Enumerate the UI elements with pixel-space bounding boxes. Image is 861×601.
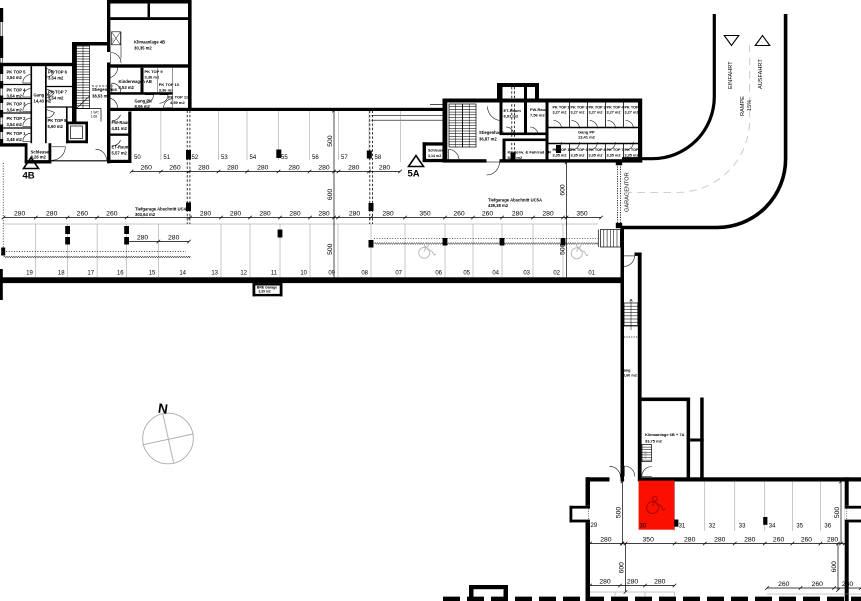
svg-text:439,38 m2: 439,38 m2: [488, 203, 509, 208]
svg-text:280: 280: [512, 210, 524, 217]
svg-text:PK TOP 4: PK TOP 4: [607, 106, 625, 110]
svg-text:55: 55: [281, 155, 288, 161]
svg-text:600: 600: [327, 189, 334, 201]
svg-text:PK TOP 9: PK TOP 9: [145, 69, 164, 74]
svg-text:4,53 m2: 4,53 m2: [119, 85, 135, 90]
svg-text:3,35 m2: 3,35 m2: [553, 154, 567, 158]
svg-text:17: 17: [87, 271, 94, 277]
svg-text:280: 280: [600, 536, 612, 543]
svg-text:51: 51: [163, 155, 170, 161]
svg-text:3,26 m2: 3,26 m2: [31, 155, 47, 160]
svg-text:PK TOP 1: PK TOP 1: [553, 106, 570, 110]
svg-text:Schleuse: Schleuse: [428, 149, 444, 153]
svg-text:Kinderwagen AB: Kinderwagen AB: [119, 79, 152, 84]
svg-text:280: 280: [230, 210, 242, 217]
svg-text:280: 280: [627, 578, 639, 585]
svg-text:280: 280: [227, 164, 239, 171]
svg-text:PK TOP 10: PK TOP 10: [159, 82, 180, 87]
svg-text:3,27 m2: 3,27 m2: [571, 111, 585, 115]
svg-text:AUSFAHRT: AUSFAHRT: [758, 59, 764, 89]
svg-text:280: 280: [842, 581, 854, 588]
svg-text:Klimaanlage 6B + 7A: Klimaanlage 6B + 7A: [645, 432, 685, 437]
svg-text:280: 280: [137, 234, 149, 241]
svg-text:PK TOP 8: PK TOP 8: [48, 118, 68, 123]
svg-text:32: 32: [709, 524, 716, 530]
svg-text:3,27 m2: 3,27 m2: [625, 111, 639, 115]
svg-text:36: 36: [824, 524, 831, 530]
svg-text:600: 600: [560, 184, 567, 196]
svg-text:280: 280: [168, 234, 180, 241]
svg-text:PK TOP 2: PK TOP 2: [571, 106, 588, 110]
svg-text:280: 280: [14, 210, 26, 217]
svg-text:11: 11: [271, 271, 278, 277]
svg-text:18: 18: [58, 271, 65, 277]
svg-text:Gang: Gang: [621, 369, 631, 373]
svg-text:16: 16: [117, 271, 124, 277]
svg-text:350: 350: [419, 210, 431, 217]
svg-text:PK TOP 2: PK TOP 2: [7, 116, 27, 121]
svg-text:3,54 m2: 3,54 m2: [7, 75, 23, 80]
svg-text:Tiefgarage Abschnitt UC4B: Tiefgarage Abschnitt UC4B: [135, 207, 189, 212]
svg-text:5,60 m2: 5,60 m2: [48, 124, 64, 129]
svg-text:09: 09: [328, 271, 335, 277]
svg-text:260: 260: [773, 536, 785, 543]
svg-text:4B: 4B: [23, 171, 35, 182]
svg-text:350: 350: [643, 536, 655, 543]
svg-text:4,5/20: 4,5/20: [644, 451, 648, 459]
svg-text:19: 19: [26, 271, 33, 277]
svg-text:280: 280: [827, 536, 839, 543]
svg-text:13: 13: [211, 271, 218, 277]
svg-text:12: 12: [240, 271, 247, 277]
svg-text:05: 05: [463, 271, 470, 277]
svg-text:58: 58: [375, 155, 382, 161]
svg-text:06: 06: [435, 271, 442, 277]
svg-text:260: 260: [141, 164, 153, 171]
svg-text:01: 01: [588, 271, 595, 277]
svg-text:280: 280: [318, 210, 330, 217]
svg-text:Stiegenhaus: Stiegenhaus: [92, 87, 118, 92]
svg-text:600: 600: [831, 561, 838, 573]
svg-text:280: 280: [198, 164, 210, 171]
svg-text:280: 280: [46, 210, 58, 217]
svg-text:280: 280: [289, 210, 301, 217]
svg-text:3,48 m2: 3,48 m2: [7, 137, 23, 142]
svg-text:15: 15: [149, 271, 156, 277]
svg-text:8,91 m2: 8,91 m2: [504, 114, 519, 119]
svg-text:280: 280: [542, 210, 554, 217]
svg-text:PK TOP 3: PK TOP 3: [589, 106, 606, 110]
svg-text:4,81 m2: 4,81 m2: [112, 126, 128, 131]
svg-text:3,54 m2: 3,54 m2: [7, 108, 23, 113]
svg-text:ET-Raum: ET-Raum: [504, 108, 522, 113]
svg-text:260: 260: [169, 164, 181, 171]
svg-text:Tiefgarage Abschnitt UC5A: Tiefgarage Abschnitt UC5A: [488, 198, 542, 203]
svg-text:RAMPE: RAMPE: [740, 96, 746, 116]
svg-text:280: 280: [379, 164, 391, 171]
svg-text:N: N: [157, 401, 169, 417]
svg-text:34: 34: [769, 524, 776, 530]
svg-text:500: 500: [327, 243, 334, 255]
svg-text:5A: 5A: [408, 169, 420, 180]
svg-text:29: 29: [591, 523, 598, 529]
svg-text:500: 500: [560, 243, 567, 255]
svg-text:280: 280: [654, 578, 666, 585]
svg-text:260: 260: [453, 210, 465, 217]
svg-text:3,35 m2: 3,35 m2: [625, 154, 639, 158]
svg-text:04: 04: [492, 271, 499, 277]
svg-text:13,41 m2: 13,41 m2: [578, 135, 596, 140]
svg-text:4,59 m2: 4,59 m2: [170, 100, 185, 105]
svg-text:Klimaanlage 4B: Klimaanlage 4B: [134, 40, 165, 45]
svg-text:3,27 m2: 3,27 m2: [589, 111, 603, 115]
svg-text:31: 31: [679, 524, 686, 530]
svg-text:EINFAHRT: EINFAHRT: [728, 61, 734, 89]
svg-text:3,14 m2: 3,14 m2: [428, 154, 441, 158]
svg-text:500: 500: [616, 507, 623, 519]
svg-text:3,36 m2: 3,36 m2: [159, 88, 174, 93]
svg-text:280: 280: [200, 210, 212, 217]
svg-text:53: 53: [221, 155, 228, 161]
svg-text:280: 280: [318, 164, 330, 171]
svg-text:280: 280: [599, 578, 611, 585]
svg-text:280: 280: [382, 210, 394, 217]
svg-text:ET-Raum: ET-Raum: [112, 145, 130, 150]
svg-text:260: 260: [482, 210, 494, 217]
svg-text:3,27 m2: 3,27 m2: [553, 111, 567, 115]
svg-text:260: 260: [77, 210, 89, 217]
svg-text:600: 600: [619, 562, 626, 574]
svg-text:500: 500: [327, 135, 334, 147]
svg-text:PK TOP 7: PK TOP 7: [48, 90, 68, 95]
svg-text:03: 03: [523, 271, 530, 277]
svg-text:PK TOP 5: PK TOP 5: [7, 69, 27, 74]
svg-text:280: 280: [348, 164, 360, 171]
svg-text:3,54 m2: 3,54 m2: [7, 122, 23, 127]
svg-text:350: 350: [576, 210, 588, 217]
svg-text:08: 08: [361, 271, 368, 277]
svg-text:303,64 m2: 303,64 m2: [135, 212, 156, 217]
svg-text:PK TOP 4: PK TOP 4: [7, 88, 27, 93]
svg-text:3,39 m2: 3,39 m2: [259, 289, 271, 293]
svg-text:7,56 m2: 7,56 m2: [530, 113, 545, 118]
svg-text:14: 14: [179, 271, 186, 277]
svg-text:33,75 m2: 33,75 m2: [645, 439, 663, 444]
svg-text:500: 500: [834, 507, 841, 519]
svg-text:33,60 m2: 33,60 m2: [621, 374, 637, 378]
svg-text:260: 260: [778, 581, 790, 588]
svg-text:280: 280: [288, 164, 300, 171]
svg-text:280: 280: [744, 536, 756, 543]
svg-text:3,35 m2: 3,35 m2: [589, 154, 603, 158]
svg-text:50: 50: [134, 155, 141, 161]
svg-text:3,35 m2: 3,35 m2: [571, 154, 585, 158]
svg-text:Gang PK: Gang PK: [135, 99, 153, 104]
svg-text:280: 280: [257, 164, 269, 171]
svg-text:260: 260: [106, 210, 118, 217]
svg-text:3,27 m2: 3,27 m2: [607, 111, 621, 115]
svg-text:1,68: 1,68: [91, 115, 98, 119]
svg-text:30,35 m2: 30,35 m2: [134, 46, 152, 51]
svg-text:3,54 m2: 3,54 m2: [7, 94, 23, 99]
svg-text:PK TOP 3: PK TOP 3: [7, 102, 27, 107]
svg-text:15%: 15%: [747, 100, 753, 111]
svg-text:10: 10: [300, 271, 307, 277]
svg-text:3,54 m2: 3,54 m2: [48, 96, 64, 101]
svg-text:280: 280: [714, 536, 726, 543]
svg-text:260: 260: [812, 581, 824, 588]
svg-text:57: 57: [341, 155, 348, 161]
svg-text:33: 33: [739, 524, 746, 530]
svg-text:4,5: 4,5: [111, 37, 115, 42]
svg-text:3,35 m2: 3,35 m2: [607, 154, 621, 158]
svg-text:PK TOP 5: PK TOP 5: [625, 106, 642, 110]
svg-text:02: 02: [553, 271, 560, 277]
svg-text:54: 54: [250, 155, 257, 161]
svg-text:280: 280: [349, 210, 361, 217]
svg-text:260: 260: [801, 536, 813, 543]
svg-text:PK TOP 1: PK TOP 1: [7, 131, 27, 136]
svg-text:35: 35: [796, 524, 803, 530]
svg-text:280: 280: [259, 210, 271, 217]
svg-text:52: 52: [192, 155, 199, 161]
svg-text:56: 56: [312, 155, 319, 161]
svg-text:30: 30: [640, 524, 647, 530]
svg-text:280: 280: [684, 536, 696, 543]
svg-text:5,57 m2: 5,57 m2: [112, 151, 128, 156]
svg-text:07: 07: [395, 271, 402, 277]
svg-text:36,87 m2: 36,87 m2: [479, 137, 497, 142]
